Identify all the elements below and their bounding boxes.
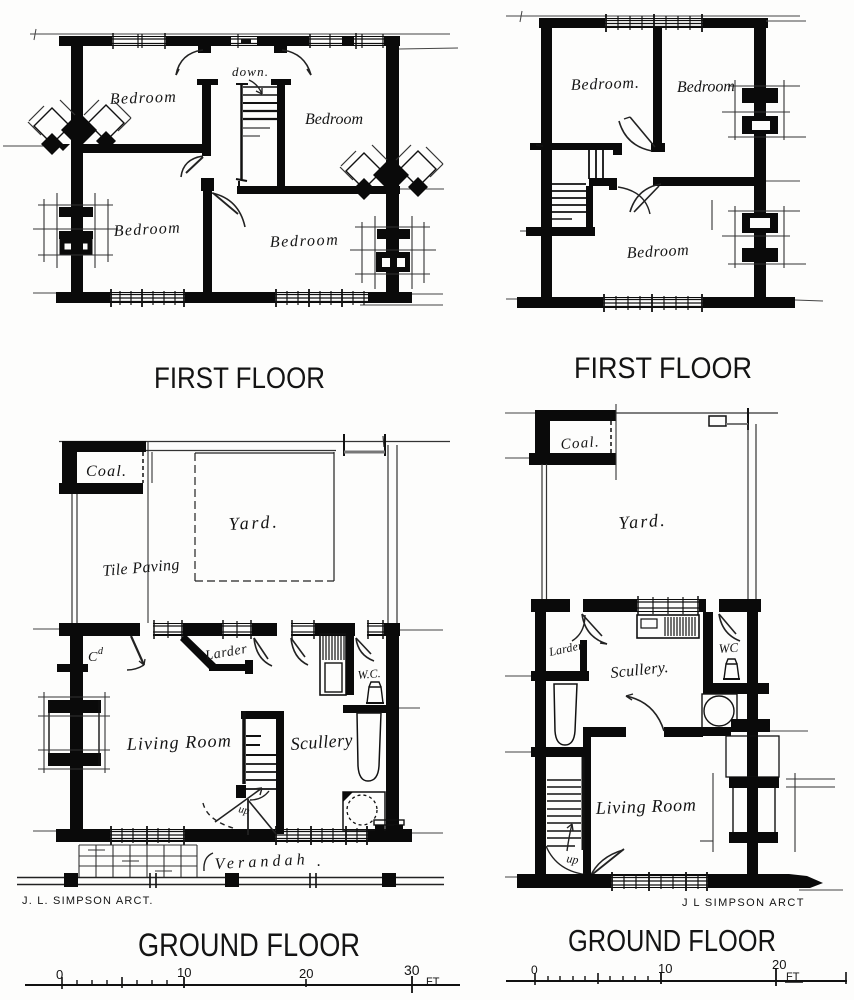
svg-text:10: 10 [177, 965, 191, 980]
svg-text:Bedroom: Bedroom [110, 89, 177, 108]
svg-text:FIRST FLOOR: FIRST FLOOR [574, 352, 752, 385]
svg-text:FT: FT [426, 976, 440, 988]
svg-text:20: 20 [772, 957, 786, 972]
svg-text:Larder: Larder [203, 642, 248, 664]
svg-text:W.C.: W.C. [357, 666, 381, 682]
svg-text:10: 10 [658, 961, 672, 976]
svg-text:Yard.: Yard. [618, 510, 665, 533]
svg-text:0: 0 [56, 967, 63, 982]
svg-text:FIRST FLOOR: FIRST FLOOR [154, 362, 325, 395]
svg-text:30: 30 [404, 962, 420, 978]
svg-text:Bedroom.: Bedroom. [571, 75, 640, 94]
svg-text:C: C [88, 650, 98, 665]
svg-text:Bedroom: Bedroom [626, 242, 689, 262]
svg-text:J. L. SIMPSON ARCT.: J. L. SIMPSON ARCT. [22, 895, 154, 907]
svg-text:Tile Paving: Tile Paving [102, 556, 180, 580]
svg-text:Coal.: Coal. [560, 434, 599, 453]
svg-text:Coal.: Coal. [86, 463, 126, 480]
svg-text:Living Room: Living Room [594, 795, 696, 819]
svg-text:up: up [565, 851, 579, 867]
svg-text:Larder: Larder [547, 638, 584, 659]
svg-text:d: d [98, 646, 104, 657]
svg-text:Scullery: Scullery [290, 730, 353, 754]
svg-text:Bedroom: Bedroom [677, 78, 735, 96]
svg-text:J L SIMPSON ARCT: J L SIMPSON ARCT [682, 897, 805, 909]
svg-text:GROUND FLOOR: GROUND FLOOR [138, 927, 360, 963]
svg-text:Living Room: Living Room [125, 730, 231, 754]
svg-text:Verandah: Verandah [214, 851, 305, 873]
svg-text:20: 20 [299, 966, 313, 981]
svg-text:Bedroom: Bedroom [305, 111, 363, 128]
svg-text:GROUND FLOOR: GROUND FLOOR [568, 923, 776, 958]
svg-text:Scullery.: Scullery. [610, 659, 669, 682]
svg-text:up: up [237, 803, 251, 817]
svg-text:down.: down. [232, 64, 268, 79]
svg-text:Bedroom: Bedroom [113, 220, 180, 240]
svg-text:0: 0 [531, 963, 538, 977]
svg-text:Bedroom: Bedroom [270, 232, 339, 251]
svg-text:Yard.: Yard. [228, 512, 277, 534]
svg-text:WC: WC [718, 640, 739, 656]
svg-text:.: . [317, 853, 321, 870]
